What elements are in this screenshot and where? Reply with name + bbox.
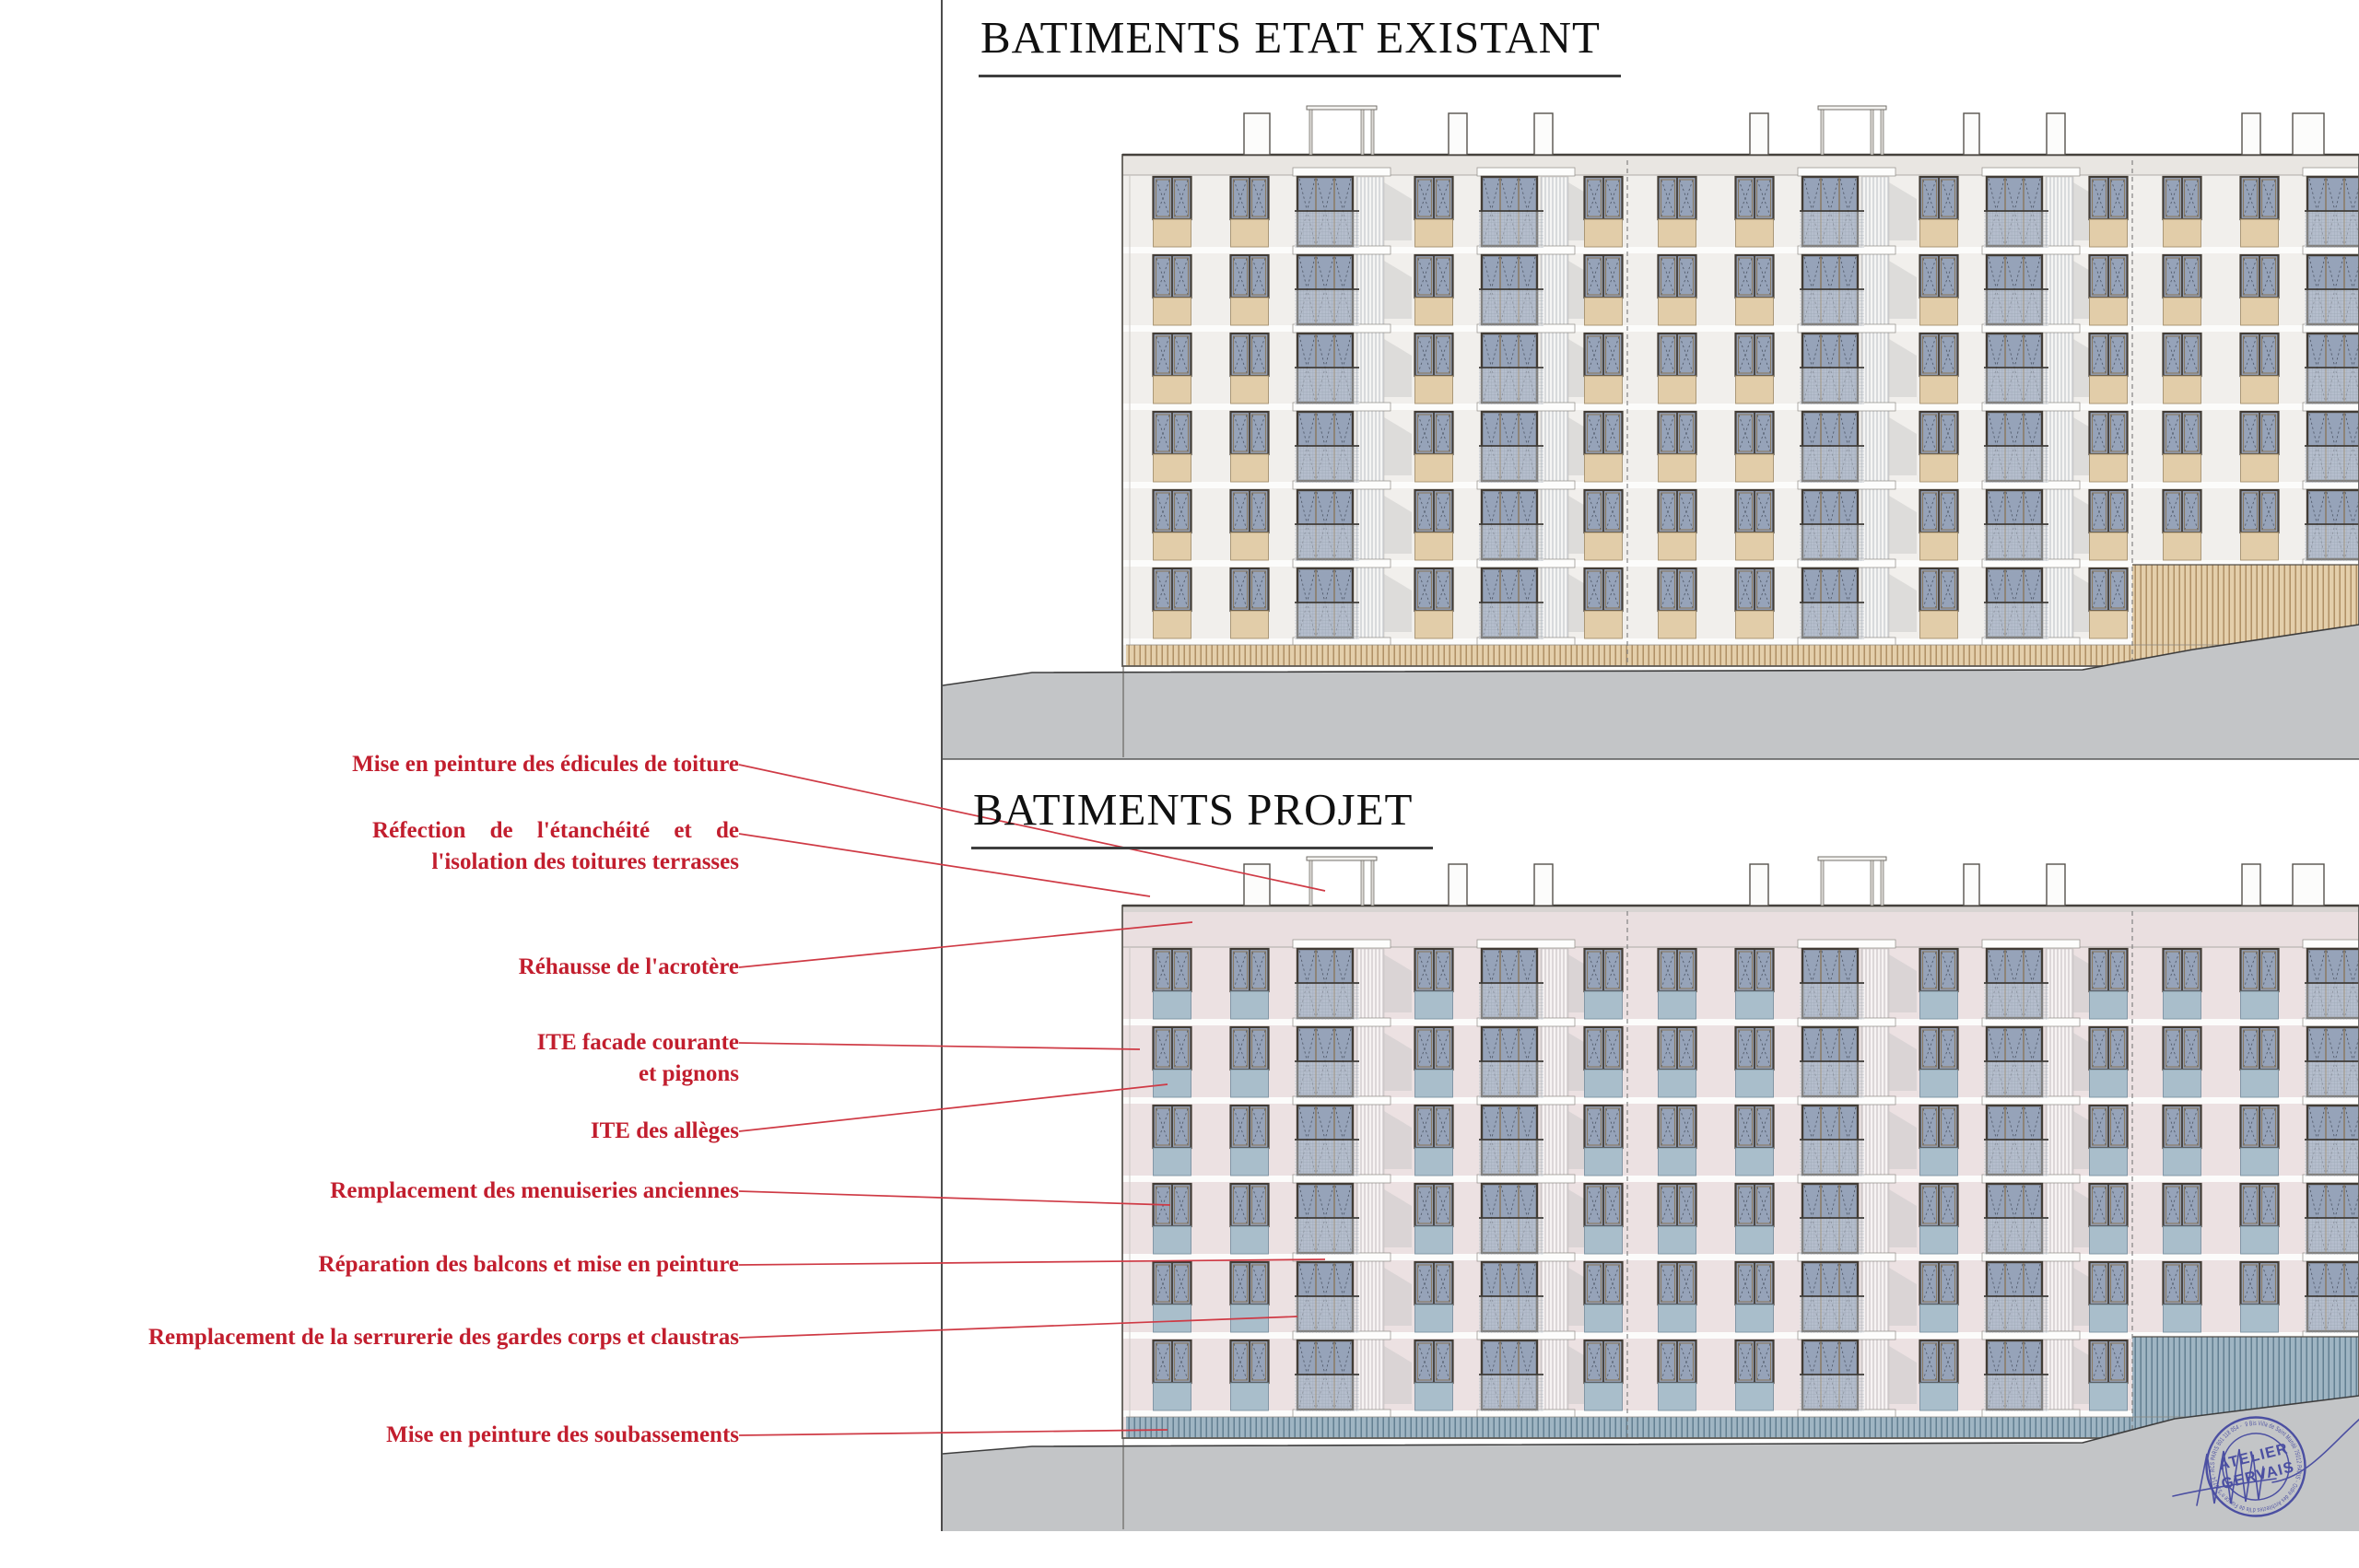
annotation-label-line: Remplacement de la serrurerie des gardes… — [148, 1322, 739, 1353]
annotation-label-line: Remplacement des menuiseries anciennes — [330, 1176, 739, 1207]
annotation-label-7: Réparation des balcons et mise en peintu… — [319, 1249, 739, 1281]
annotation-label-line: Réparation des balcons et mise en peintu… — [319, 1249, 739, 1281]
annotation-label-9: Mise en peinture des soubassements — [386, 1420, 739, 1451]
annotation-label-line: Réfection de l'étanchéité et de — [372, 815, 739, 847]
annotation-label-line: ITE des allèges — [591, 1116, 739, 1147]
annotation-label-8: Remplacement de la serrurerie des gardes… — [148, 1322, 739, 1353]
annotation-label-line: l'isolation des toitures terrasses — [372, 847, 739, 878]
annotation-label-6: Remplacement des menuiseries anciennes — [330, 1176, 739, 1207]
annotation-label-line: et pignons — [537, 1059, 739, 1090]
annotation-label-3: Réhausse de l'acrotère — [519, 952, 739, 983]
architect-stamp: 9 Bis Villa de Saint Mandé 75012 PARIS -… — [2154, 1365, 2357, 1568]
annotation-label-line: Mise en peinture des édicules de toiture — [352, 749, 739, 780]
annotation-label-line: Réhausse de l'acrotère — [519, 952, 739, 983]
annotation-labels: Mise en peinture des édicules de toiture… — [0, 0, 2359, 1531]
stamp-ring-text: 9 Bis Villa de Saint Mandé 75012 PARIS -… — [2200, 1410, 2311, 1522]
annotation-label-2: Réfection de l'étanchéité et del'isolati… — [372, 815, 739, 878]
annotation-label-line: ITE facade courante — [537, 1027, 739, 1059]
annotation-label-1: Mise en peinture des édicules de toiture — [352, 749, 739, 780]
drawing-canvas: BATIMENTS ETAT EXISTANT BATIMENTS PROJET… — [0, 0, 2359, 1531]
annotation-label-5: ITE des allèges — [591, 1116, 739, 1147]
stamp-seal: 9 Bis Villa de Saint Mandé 75012 PARIS -… — [2196, 1407, 2316, 1527]
annotation-label-4: ITE facade couranteet pignons — [537, 1027, 739, 1090]
annotation-label-line: Mise en peinture des soubassements — [386, 1420, 739, 1451]
